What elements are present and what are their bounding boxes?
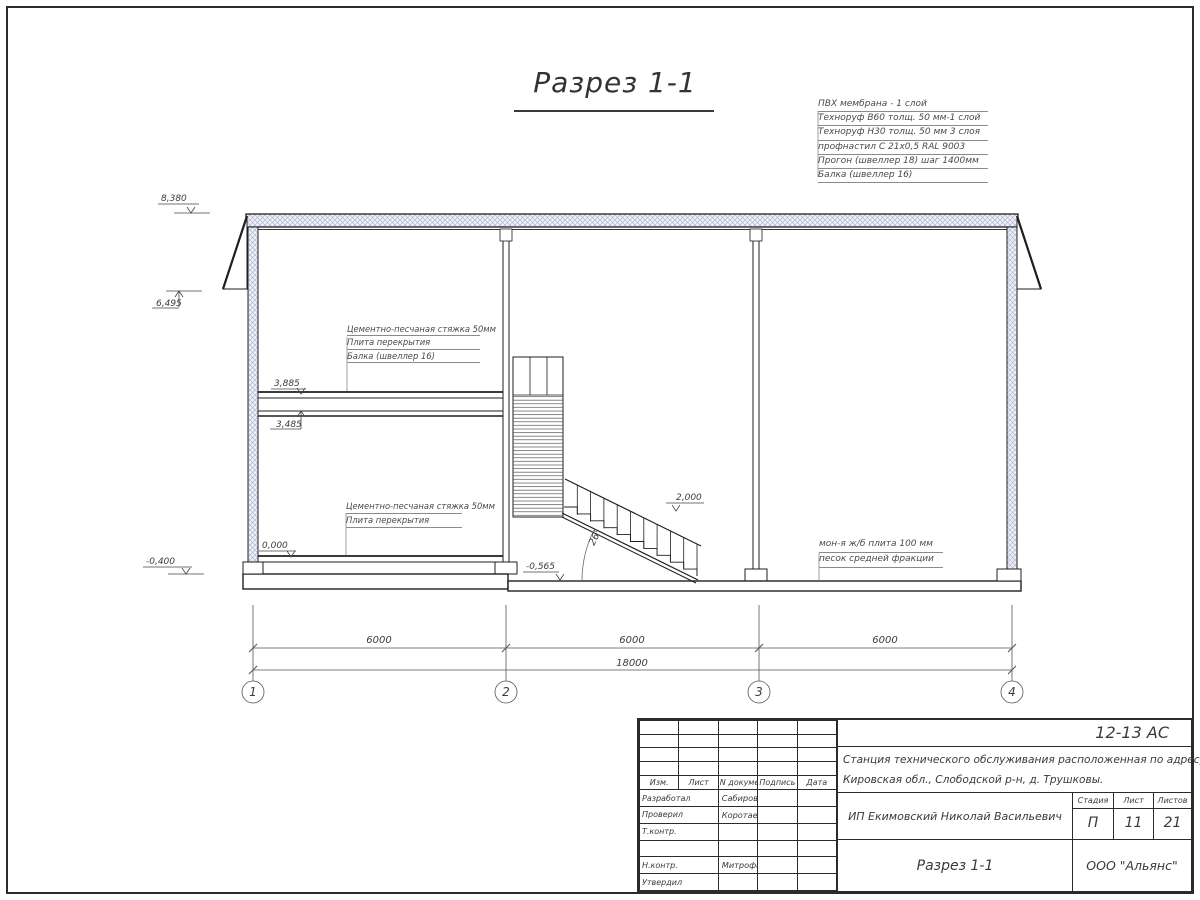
staff-name: Коротаев С. Н. [718, 807, 757, 824]
sheet-label: Лист [1113, 793, 1153, 809]
left-foundation [243, 574, 508, 589]
svg-text:3: 3 [755, 685, 763, 699]
staff-role: Разработал [640, 790, 719, 807]
legend-line: Техноруф Н30 толщ. 50 мм 3 слоя [818, 126, 988, 140]
svg-text:2,000: 2,000 [676, 493, 702, 503]
right-eave [1017, 216, 1041, 289]
legend-line: Техноруф В60 толщ. 50 мм-1 слой [818, 112, 988, 126]
staff-name [718, 823, 757, 840]
elevation-floor2-bottom: 3,485 [270, 411, 305, 430]
project-line2: Кировская обл., Слободской р-н, д. Трушк… [843, 770, 1191, 790]
legend-line: профнастил С 21х0,5 RAL 9003 [818, 141, 988, 155]
elevation-pit: -0,565 [523, 562, 564, 580]
second-floor-slab [258, 392, 503, 416]
dimension-lines: 6000 6000 6000 18000 1 2 3 4 [242, 605, 1023, 703]
sheets-label: Листов [1153, 793, 1191, 809]
svg-text:4: 4 [1008, 685, 1016, 699]
elevation-eave: 6,495 [152, 291, 202, 309]
staff-name [718, 840, 757, 857]
svg-text:0,000: 0,000 [262, 541, 288, 551]
drawing-name: Разрез 1-1 [837, 840, 1072, 891]
left-wall-footing [243, 562, 263, 574]
staff-name: Митрофанов Я. А. [718, 857, 757, 874]
sheets-value: 21 [1153, 809, 1191, 840]
second-floor-legend: Цементно-песчаная стяжка 50мм Плита пере… [347, 323, 480, 363]
elevation-ground: 0,000 [259, 541, 296, 557]
svg-text:3,485: 3,485 [276, 420, 302, 430]
company-name: ООО "Альянс" [1072, 840, 1191, 891]
col-date: Дата [797, 775, 836, 790]
svg-text:2: 2 [502, 685, 510, 699]
drawing-title: Разрез 1-1 [450, 66, 780, 99]
legend-line: Цементно-песчаная стяжка 50мм [347, 323, 480, 336]
dim-total: 18000 [616, 658, 648, 669]
staff-name: Сабиров Р.Н [718, 790, 757, 807]
document-code: 12-13 АС [837, 720, 1191, 747]
col-doc: N документа [718, 775, 757, 790]
staff-role: Проверил [640, 807, 719, 824]
ground-floor-slab [258, 556, 503, 562]
stair-tower [513, 357, 563, 517]
legend-line: Прогон (швеллер 18) шаг 1400мм [818, 155, 988, 169]
roof-legend: ПВХ мембрана - 1 слой Техноруф В60 толщ.… [818, 98, 988, 183]
title-underline [514, 110, 714, 112]
staff-role: Утвердил [640, 874, 719, 891]
staff-role: Н.контр. [640, 857, 719, 874]
dim-span3: 6000 [872, 635, 897, 646]
legend-line: Плита перекрытия [347, 336, 480, 349]
elevation-roof: 8,380 [158, 194, 210, 213]
legend-line: мон-я ж/б плита 100 мм [819, 538, 943, 553]
project-line1: Станция технического обслуживания распол… [843, 750, 1191, 770]
staff-name [718, 874, 757, 891]
svg-text:8,380: 8,380 [161, 194, 187, 204]
legend-line: песок средней фракции [819, 553, 943, 568]
project-description: Станция технического обслуживания распол… [837, 747, 1191, 793]
stage-value: П [1072, 809, 1113, 840]
right-wall-footing [997, 569, 1021, 581]
staff-table: Изм. Лист N документа Подпись Дата Разра… [639, 720, 837, 891]
ground-floor-legend: Цементно-песчаная стяжка 50мм Плита пере… [346, 500, 462, 528]
elevation-stair: 2,000 [666, 493, 704, 511]
legend-line: Балка (швеллер 16) [347, 350, 480, 363]
left-wall [248, 227, 258, 562]
right-wall [1007, 227, 1017, 569]
dim-span2: 6000 [619, 635, 644, 646]
title-block: Изм. Лист N документа Подпись Дата Разра… [637, 718, 1193, 893]
legend-line: Балка (швеллер 16) [818, 169, 988, 183]
left-eave [223, 216, 247, 289]
legend-line: ПВХ мембрана - 1 слой [818, 98, 988, 112]
col-sign: Подпись [758, 775, 797, 790]
col-list: Лист [679, 775, 718, 790]
slab-legend: мон-я ж/б плита 100 мм песок средней фра… [819, 538, 943, 568]
legend-line: Плита перекрытия [346, 514, 462, 528]
svg-text:1: 1 [249, 685, 257, 699]
sheet-value: 11 [1113, 809, 1153, 840]
svg-text:-0,400: -0,400 [146, 557, 175, 567]
pit-slab [508, 581, 1021, 591]
axis-bubbles: 1 2 3 4 [242, 681, 1023, 703]
staff-role [640, 840, 719, 857]
client-name: ИП Екимовский Николай Васильевич [837, 793, 1072, 840]
svg-text:-0,565: -0,565 [526, 562, 555, 572]
staff-role: Т.контр. [640, 823, 719, 840]
legend-line: Цементно-песчаная стяжка 50мм [346, 500, 462, 514]
col-izm: Изм. [640, 775, 679, 790]
dim-span1: 6000 [366, 635, 391, 646]
svg-text:6,495: 6,495 [156, 299, 182, 309]
roof-slab [246, 214, 1018, 227]
stage-label: Стадия [1072, 793, 1113, 809]
column-axis3 [745, 229, 767, 581]
svg-text:3,885: 3,885 [274, 379, 300, 389]
drawing-sheet: 26° 8,380 6,495 3,885 3,485 0,000 -0,40 [0, 0, 1200, 900]
elevation-foundation: -0,400 [143, 557, 204, 574]
